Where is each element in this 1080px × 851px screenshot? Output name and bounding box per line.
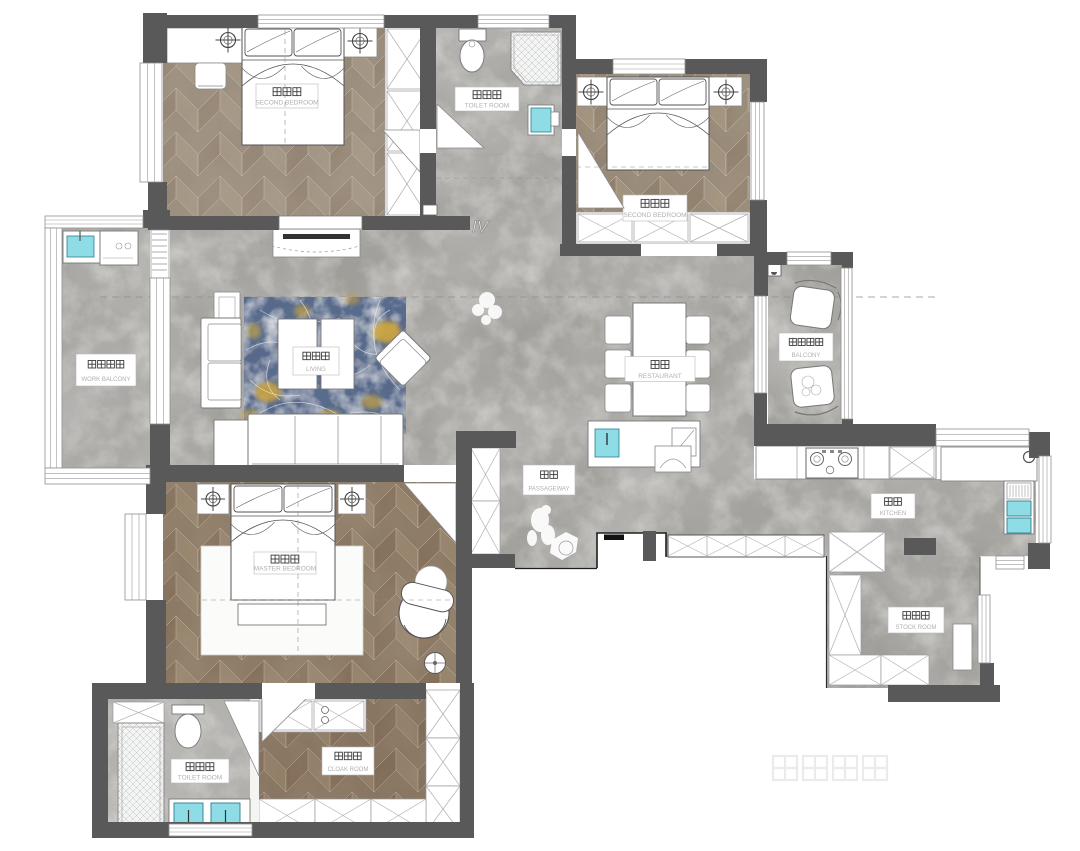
svg-text:CLOAK ROOM: CLOAK ROOM	[328, 767, 369, 773]
svg-text:TOILET ROOM: TOILET ROOM	[465, 102, 510, 109]
svg-text:TOILET ROOM: TOILET ROOM	[178, 774, 223, 781]
svg-text:KITCHEN: KITCHEN	[880, 511, 906, 517]
svg-text:LIVING: LIVING	[306, 367, 326, 373]
svg-text:RESTAURANT: RESTAURANT	[638, 373, 682, 380]
svg-text:WORK BALCONY: WORK BALCONY	[81, 377, 130, 383]
svg-text:MASTER BEDROOM: MASTER BEDROOM	[254, 566, 316, 573]
svg-text:IV: IV	[472, 217, 490, 236]
svg-text:BALCONY: BALCONY	[792, 353, 821, 359]
svg-text:SECOND BEDROOM: SECOND BEDROOM	[255, 99, 318, 106]
svg-text:SECOND BEDROOM: SECOND BEDROOM	[623, 212, 686, 219]
svg-text:STOCK ROOM: STOCK ROOM	[896, 625, 937, 631]
svg-text:PASSAGEWAY: PASSAGEWAY	[528, 487, 569, 493]
